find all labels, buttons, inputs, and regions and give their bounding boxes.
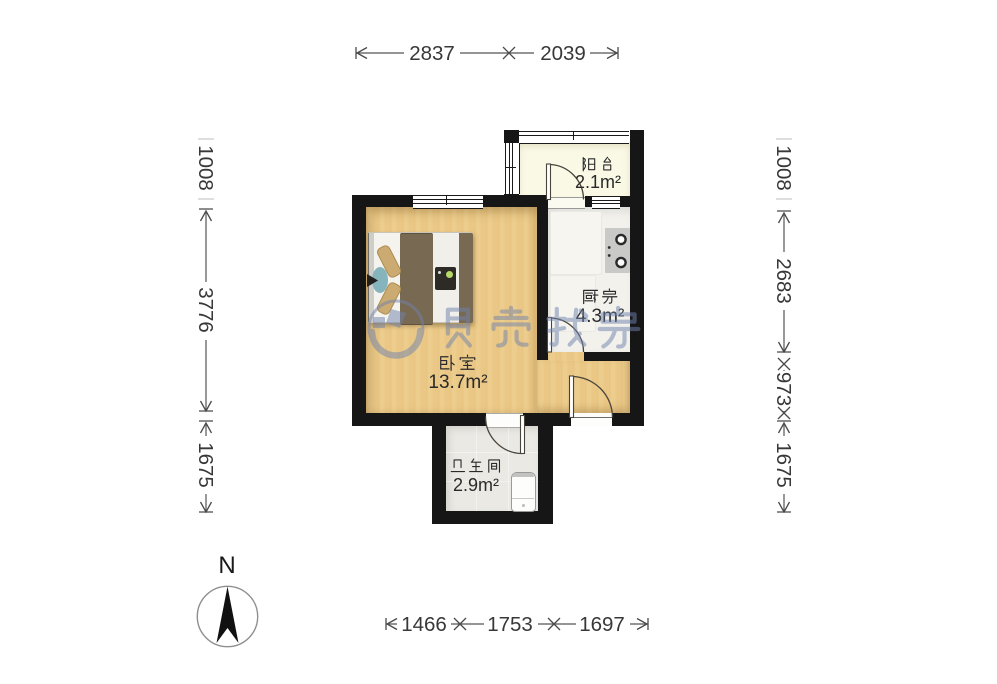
svg-text:1008: 1008 [194, 145, 217, 191]
svg-text:973: 973 [772, 372, 795, 406]
svg-text:3776: 3776 [194, 287, 217, 333]
svg-text:2683: 2683 [772, 258, 795, 304]
svg-text:1008: 1008 [772, 145, 795, 191]
svg-text:2039: 2039 [540, 42, 586, 65]
svg-text:1697: 1697 [579, 613, 625, 636]
svg-text:1753: 1753 [487, 613, 533, 636]
svg-text:1466: 1466 [401, 613, 447, 636]
svg-text:2837: 2837 [409, 42, 455, 65]
svg-text:1675: 1675 [772, 442, 795, 488]
svg-text:1675: 1675 [194, 442, 217, 488]
